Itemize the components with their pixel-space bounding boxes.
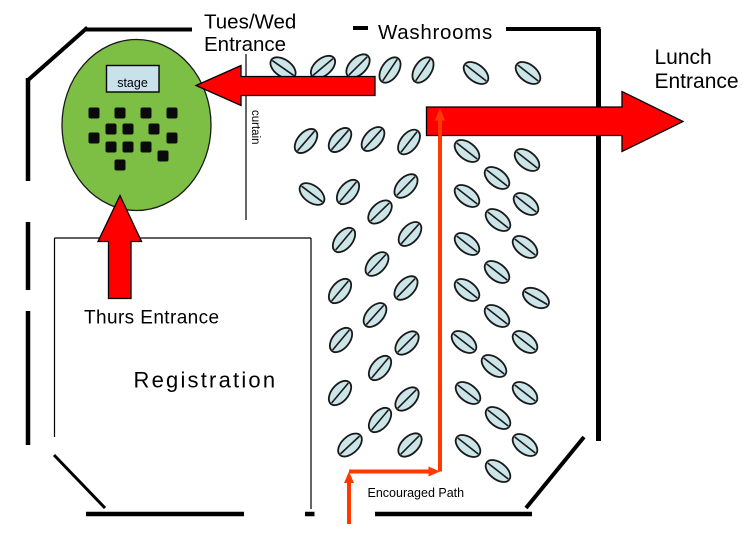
svg-text:Thurs Entrance: Thurs Entrance [84,308,220,329]
svg-text:Washrooms: Washrooms [378,21,493,44]
svg-text:Registration: Registration [134,368,278,393]
svg-text:Entrance: Entrance [204,33,286,56]
svg-text:Tues/Wed: Tues/Wed [204,11,296,34]
svg-text:stage: stage [117,76,148,90]
svg-text:Encouraged Path: Encouraged Path [368,486,465,500]
svg-text:curtain: curtain [249,110,261,145]
svg-text:Lunch: Lunch [655,46,712,69]
svg-text:Entrance: Entrance [655,70,739,93]
